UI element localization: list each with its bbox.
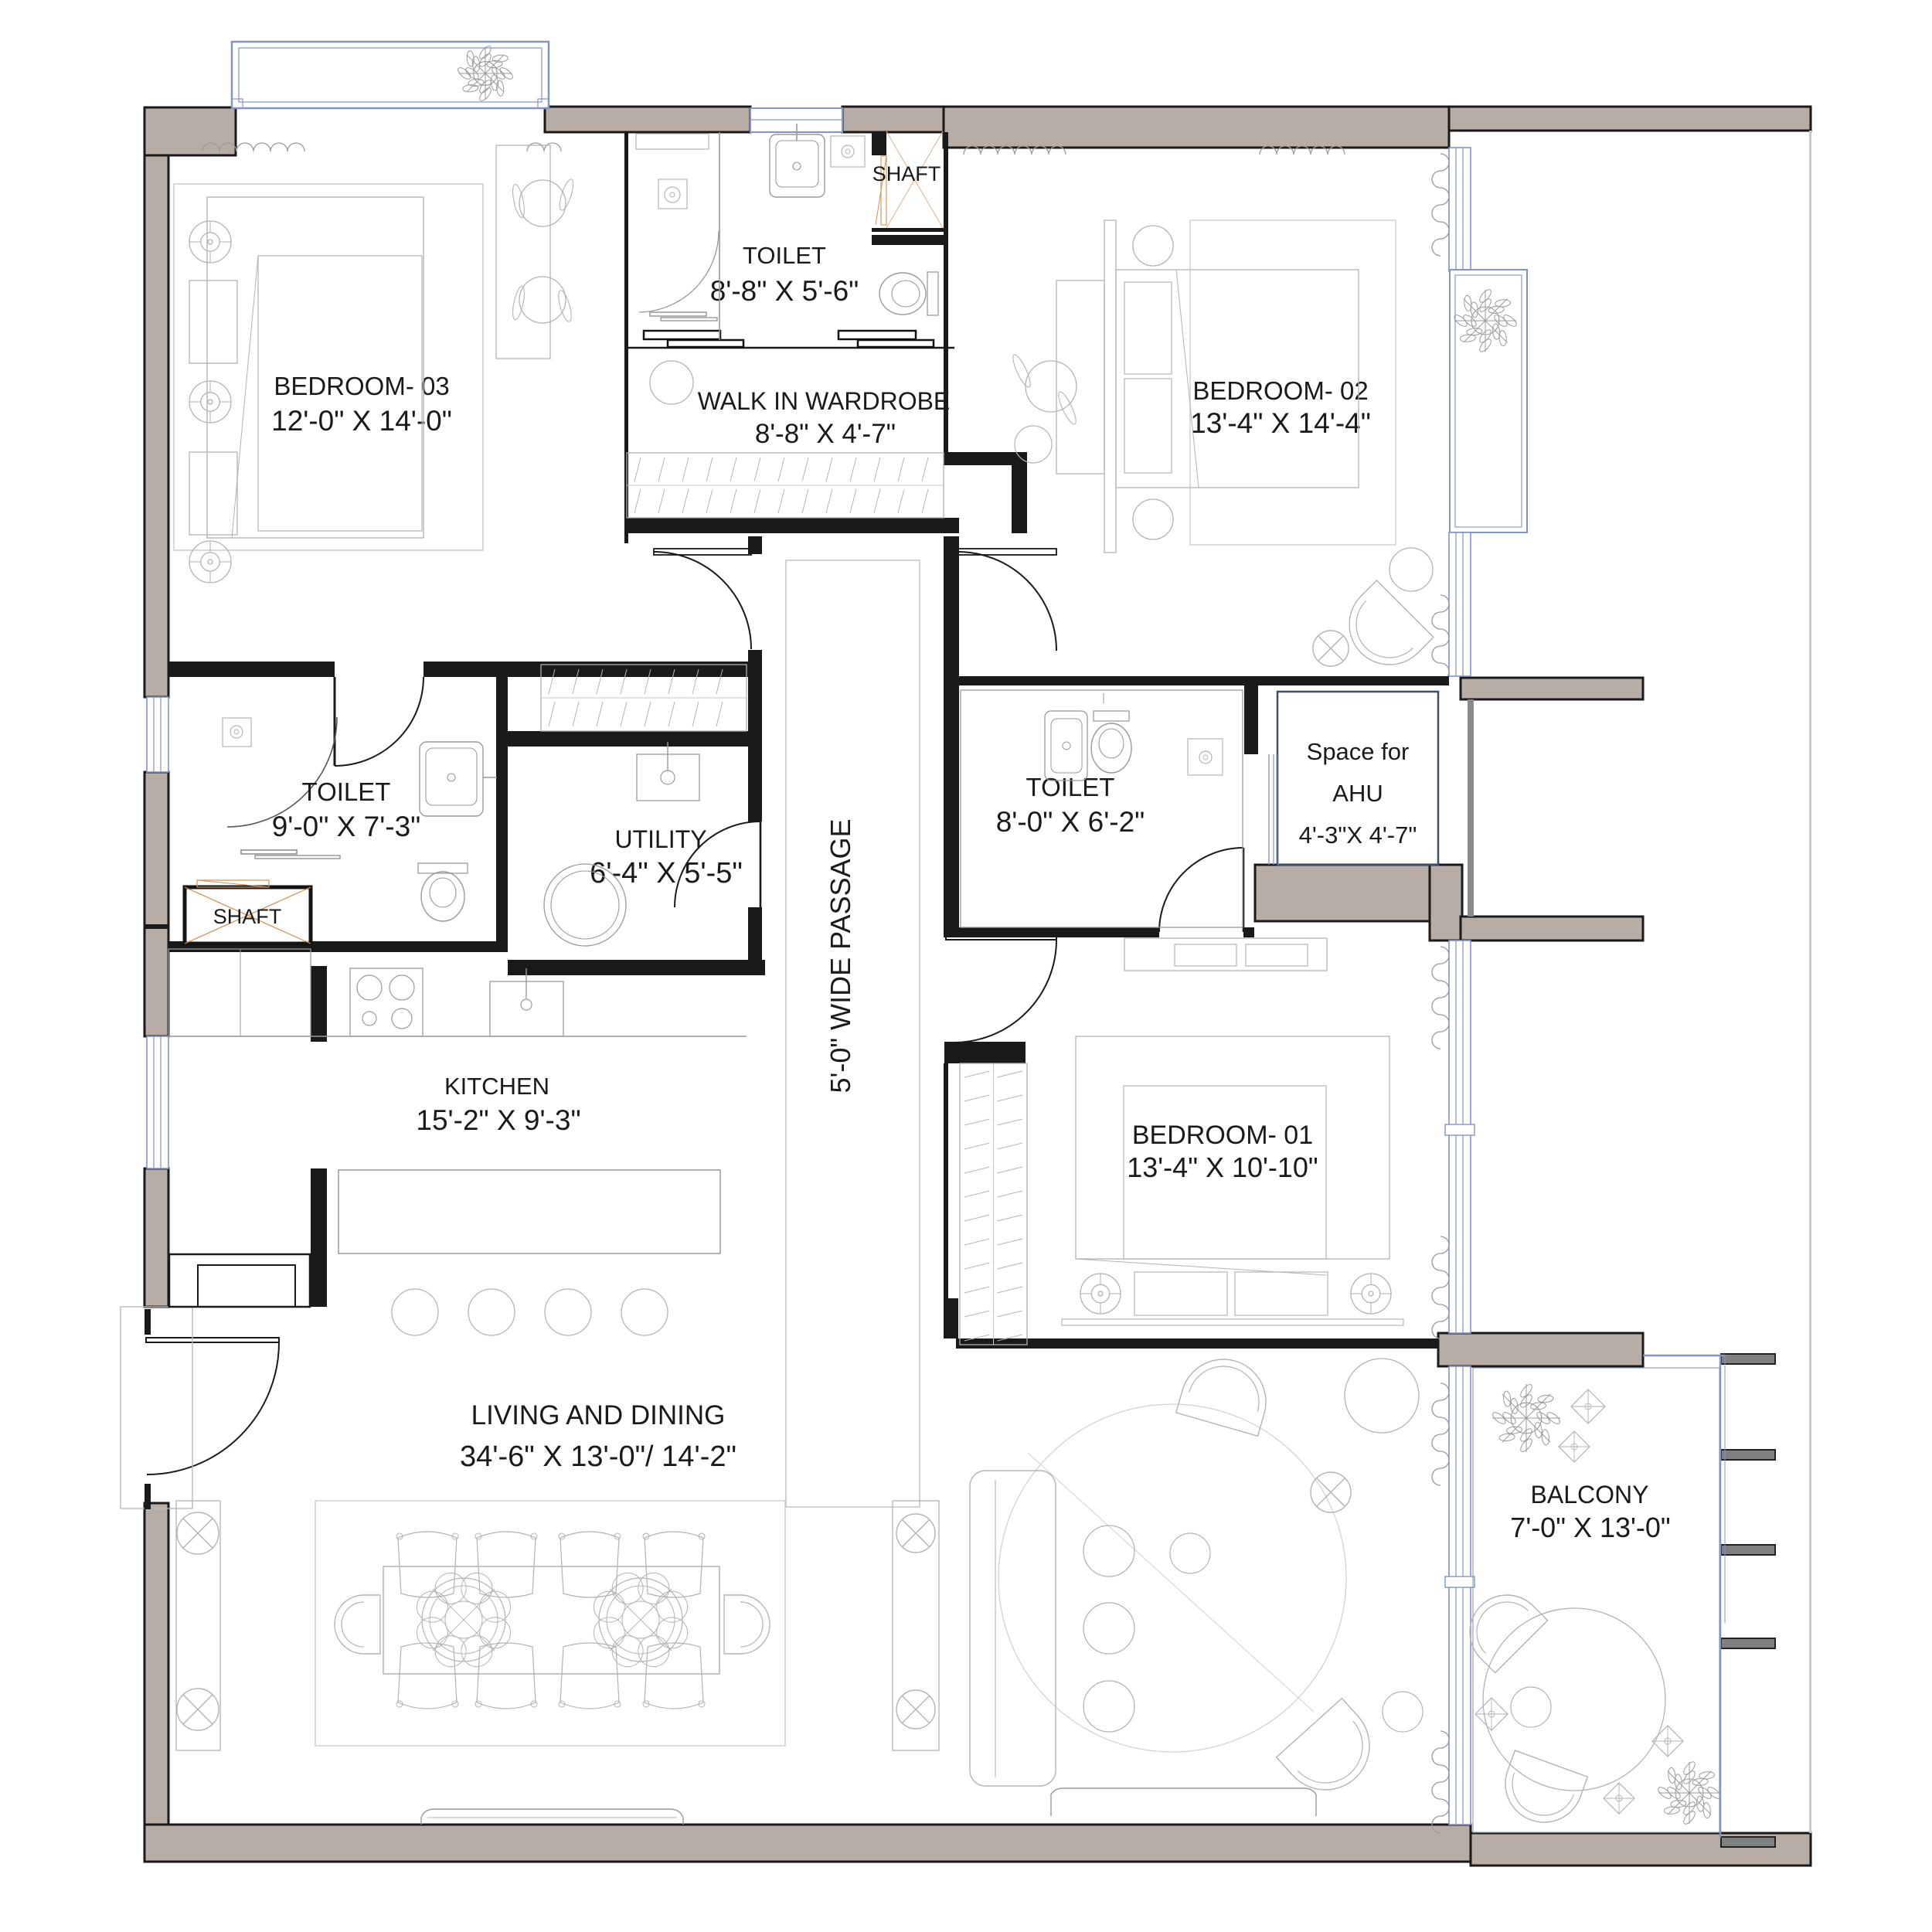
svg-text:TOILET: TOILET [743, 242, 826, 269]
svg-text:34'-6" X 13'-0"/ 14'-2": 34'-6" X 13'-0"/ 14'-2" [460, 1440, 736, 1473]
svg-text:AHU: AHU [1332, 780, 1383, 807]
svg-text:Space for: Space for [1307, 738, 1410, 765]
svg-text:9'-0" X 7'-3": 9'-0" X 7'-3" [272, 811, 421, 842]
svg-text:SHAFT: SHAFT [872, 162, 941, 185]
svg-text:BALCONY: BALCONY [1531, 1481, 1649, 1509]
svg-text:13'-4" X 10'-10": 13'-4" X 10'-10" [1127, 1151, 1318, 1183]
svg-text:12'-0" X 14'-0": 12'-0" X 14'-0" [271, 405, 452, 437]
svg-text:UTILITY: UTILITY [614, 825, 706, 853]
svg-text:13'-4" X 14'-4": 13'-4" X 14'-4" [1190, 407, 1371, 439]
svg-text:7'-0" X 13'-0": 7'-0" X 13'-0" [1510, 1512, 1670, 1543]
svg-text:8'-0" X 6'-2": 8'-0" X 6'-2" [996, 806, 1145, 838]
svg-text:BEDROOM- 02: BEDROOM- 02 [1192, 376, 1368, 405]
svg-text:BEDROOM- 01: BEDROOM- 01 [1132, 1121, 1313, 1150]
svg-text:15'-2" X 9'-3": 15'-2" X 9'-3" [416, 1104, 580, 1136]
svg-text:8'-8" X 5'-6": 8'-8" X 5'-6" [710, 275, 859, 307]
svg-text:WALK IN WARDROBE: WALK IN WARDROBE [698, 387, 951, 415]
svg-text:5'-0" WIDE PASSAGE: 5'-0" WIDE PASSAGE [825, 818, 856, 1093]
svg-text:SHAFT: SHAFT [213, 905, 282, 928]
svg-text:LIVING AND DINING: LIVING AND DINING [471, 1400, 726, 1430]
svg-text:KITCHEN: KITCHEN [444, 1073, 549, 1100]
svg-text:TOILET: TOILET [302, 777, 391, 806]
svg-text:4'-3"X 4'-7": 4'-3"X 4'-7" [1299, 821, 1417, 849]
svg-text:TOILET: TOILET [1026, 773, 1115, 801]
svg-text:8'-8" X 4'-7": 8'-8" X 4'-7" [755, 419, 896, 449]
